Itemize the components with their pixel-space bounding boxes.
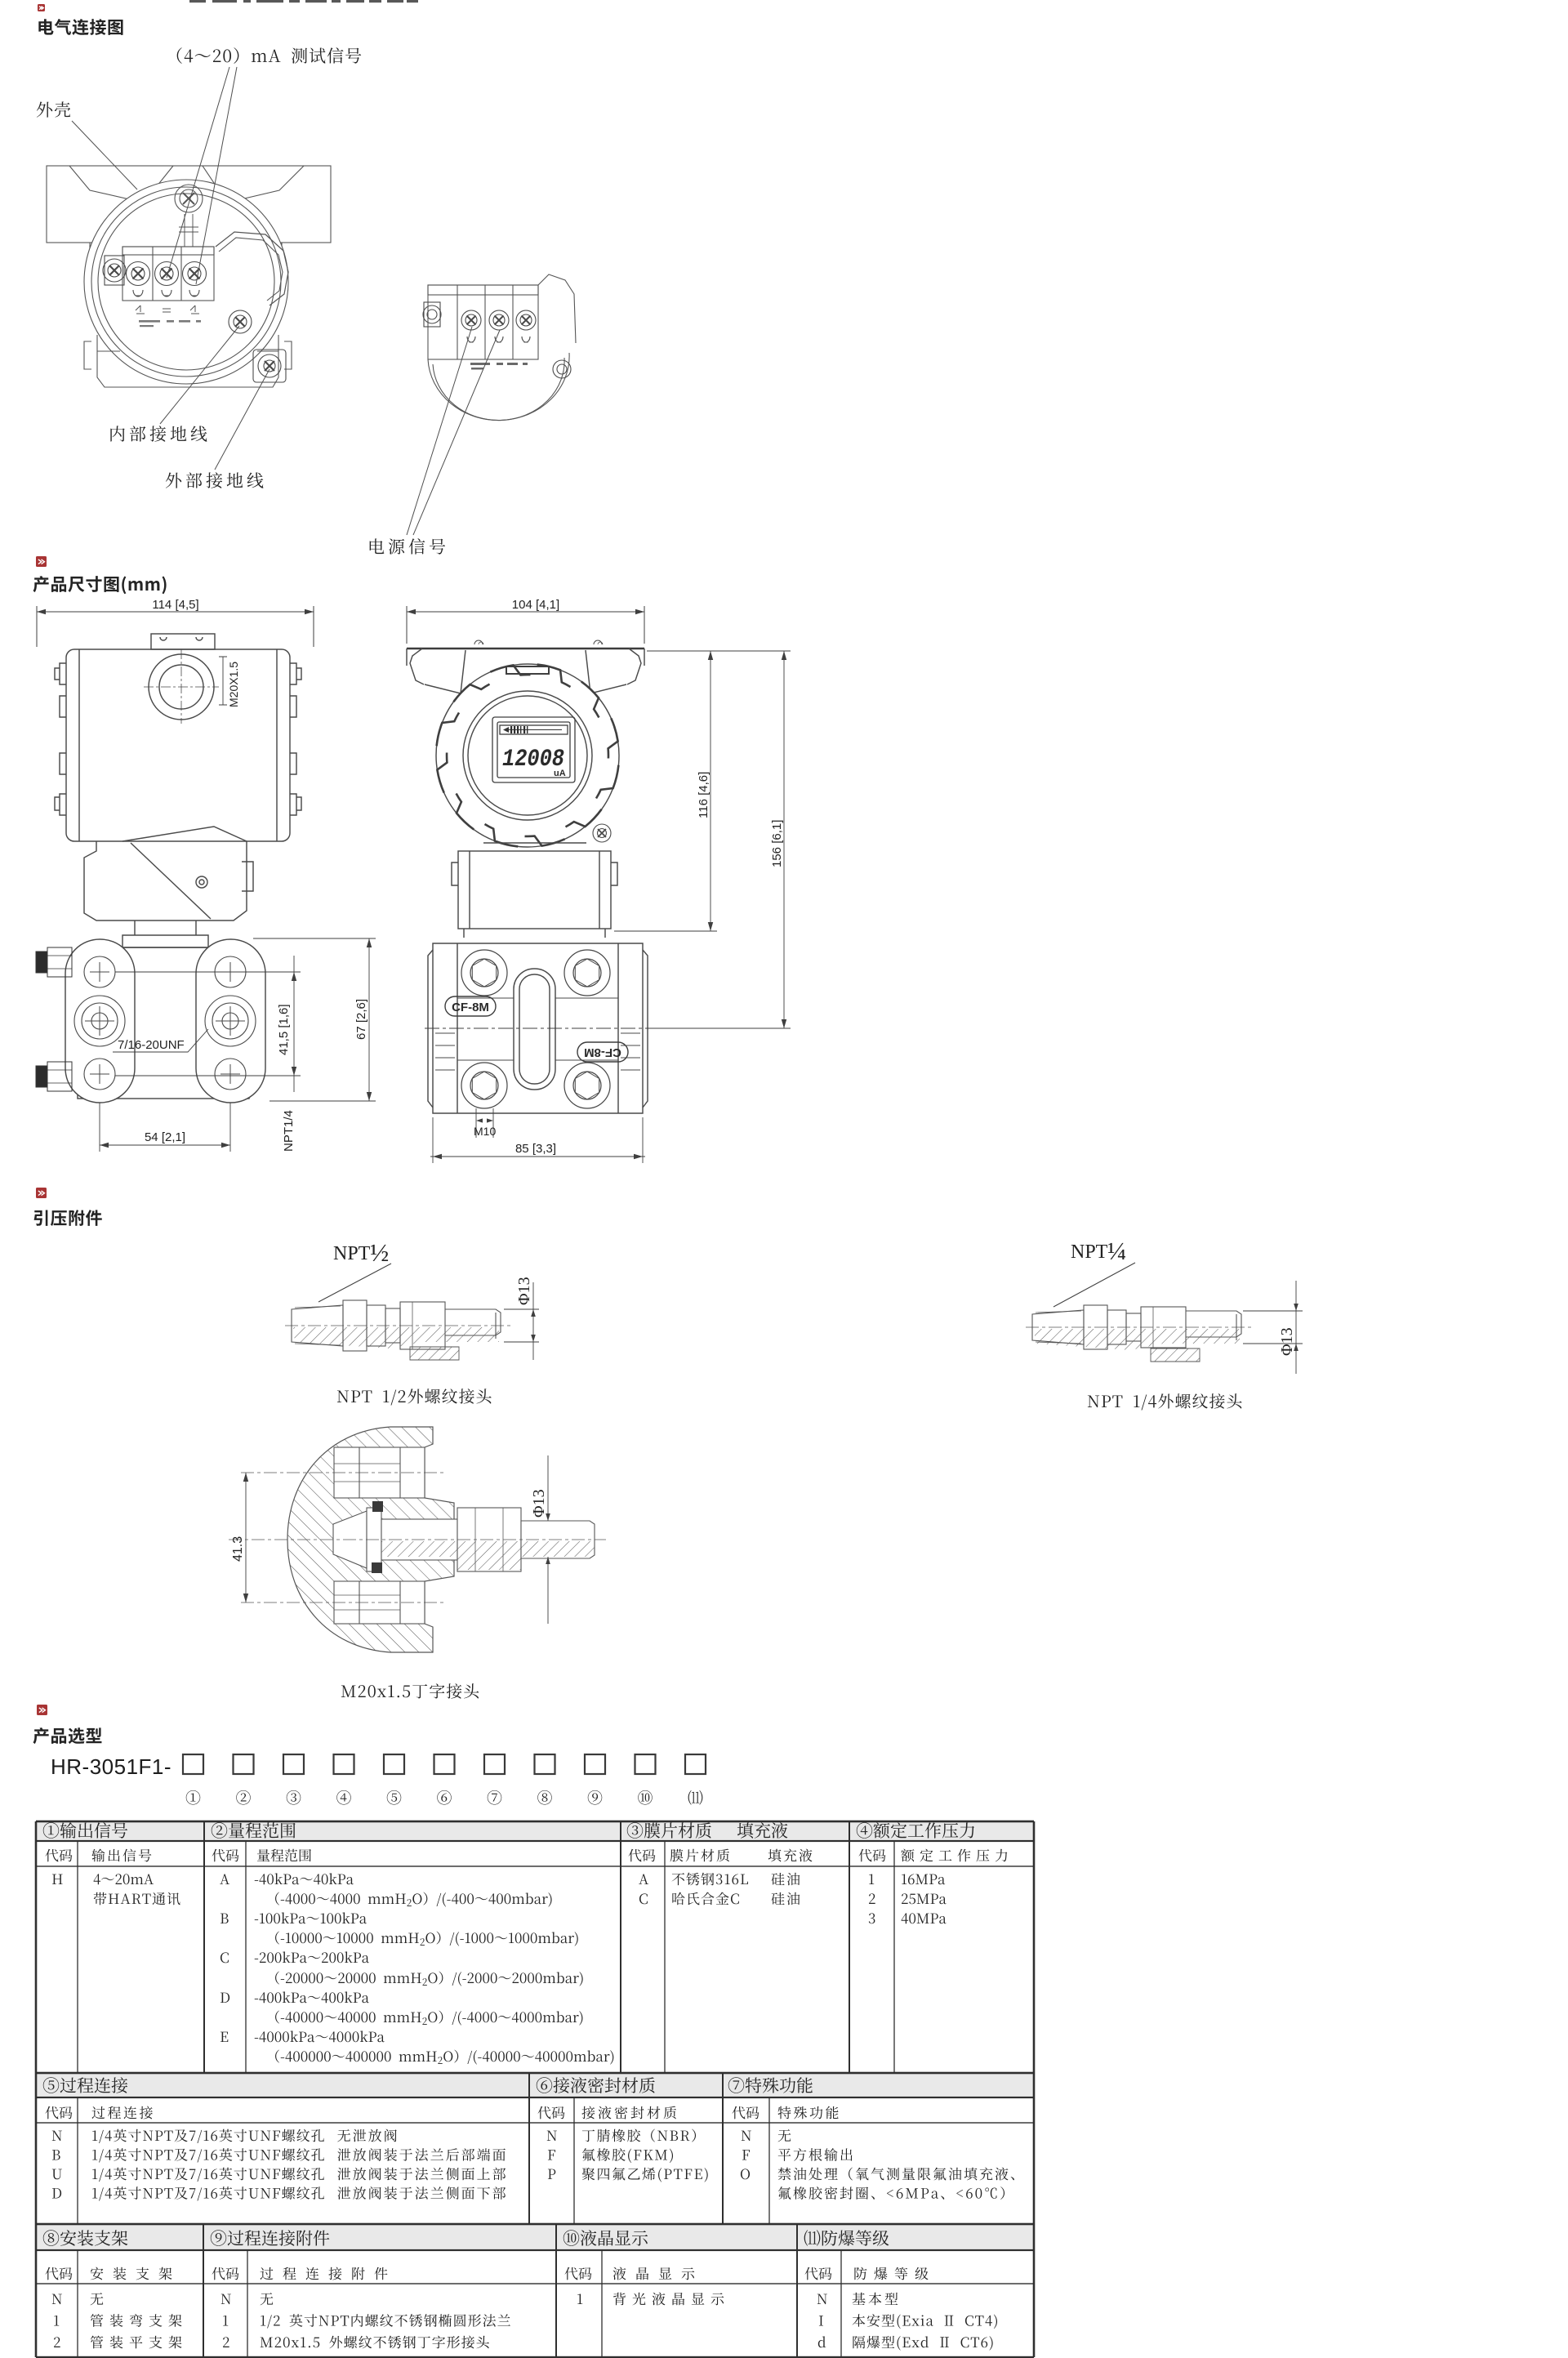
svg-text:Φ13: Φ13	[530, 1489, 548, 1518]
svg-text:54 [2,1]: 54 [2,1]	[145, 1130, 185, 1144]
svg-text:M20X1.5: M20X1.5	[227, 662, 240, 707]
svg-text:104 [4,1]: 104 [4,1]	[512, 598, 559, 612]
svg-text:114 [4,5]: 114 [4,5]	[152, 598, 198, 612]
svg-text:CF-8M: CF-8M	[452, 1001, 489, 1014]
svg-text:41,5 [1,6]: 41,5 [1,6]	[277, 1004, 291, 1055]
svg-text:M10: M10	[474, 1125, 496, 1138]
svg-text:Φ13: Φ13	[515, 1277, 533, 1305]
svg-text:7/16-20UNF: 7/16-20UNF	[118, 1038, 185, 1052]
svg-text:116 [4,6]: 116 [4,6]	[697, 772, 710, 818]
svg-text:½: ½	[370, 1238, 389, 1267]
svg-text:67 [2,6]: 67 [2,6]	[354, 999, 368, 1040]
svg-text:uA: uA	[554, 769, 566, 778]
svg-text:NPT: NPT	[333, 1243, 371, 1264]
svg-text:CF-8M: CF-8M	[584, 1045, 621, 1059]
svg-text:HR-3051F1-: HR-3051F1-	[51, 1754, 171, 1779]
svg-text:Φ13: Φ13	[1278, 1327, 1296, 1356]
svg-text:NPT: NPT	[1071, 1241, 1108, 1263]
svg-text:156 [6,1]: 156 [6,1]	[770, 820, 784, 867]
svg-text:41.3: 41.3	[231, 1536, 245, 1562]
svg-text:85 [3,3]: 85 [3,3]	[515, 1142, 556, 1156]
svg-text:¼: ¼	[1107, 1237, 1126, 1265]
svg-text:NPT1/4: NPT1/4	[282, 1110, 296, 1152]
